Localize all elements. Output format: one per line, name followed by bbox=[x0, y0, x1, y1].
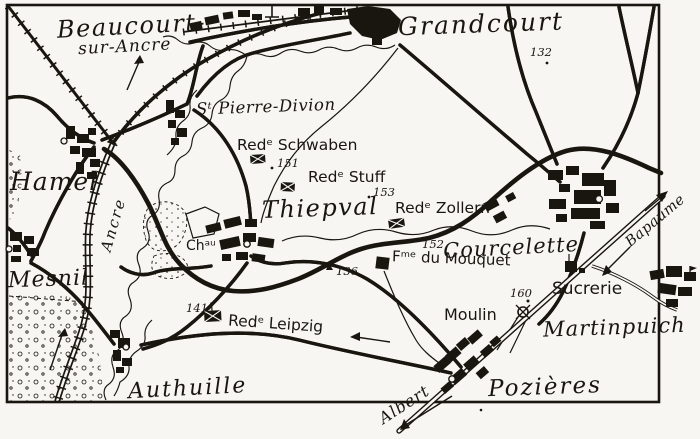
label-redoubt-stuff: Redᵉ Stuff bbox=[308, 168, 386, 186]
label-pozieres: Pozières bbox=[487, 372, 603, 402]
spot-height-141: 141 bbox=[186, 301, 208, 315]
windmill-icon bbox=[516, 305, 530, 319]
label-redoubt-schwaben: Redᵉ Schwaben bbox=[237, 136, 357, 154]
spot-height-132: 132 bbox=[530, 45, 552, 59]
trench-map: Beaucourt- sur-Ancre Grandcourt Sᵗ Pierr… bbox=[0, 0, 700, 439]
label-mesnil: Mesnil bbox=[7, 265, 90, 293]
spot-height-153: 153 bbox=[373, 185, 395, 199]
spot-height-136: 136 bbox=[336, 264, 358, 278]
label-martinpuich: Martinpuich bbox=[542, 313, 686, 342]
label-hamel: Hamel bbox=[9, 167, 98, 196]
spot-height-160: 160 bbox=[510, 286, 532, 300]
label-chateau: Chᵃᵘ bbox=[186, 238, 216, 254]
map-canvas: Beaucourt- sur-Ancre Grandcourt Sᵗ Pierr… bbox=[0, 0, 700, 439]
label-redoubt-zollern: Redᵉ Zollern bbox=[395, 199, 490, 217]
spot-height-151: 151 bbox=[277, 156, 299, 170]
stuff-redoubt-icon bbox=[281, 182, 295, 192]
mouquet-farm-building bbox=[375, 256, 389, 269]
label-thiepval: Thiepval bbox=[262, 192, 379, 224]
label-grandcourt: Grandcourt bbox=[397, 6, 564, 41]
schwaben-redoubt-icon bbox=[250, 154, 266, 164]
label-sucrerie: Sucrerie bbox=[552, 279, 622, 299]
label-moulin: Moulin bbox=[444, 305, 497, 324]
spot-height-152: 152 bbox=[422, 237, 444, 251]
